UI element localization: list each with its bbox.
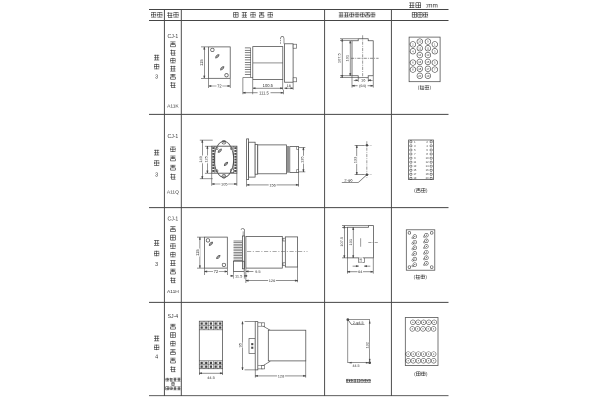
svg-text:A11Q: A11Q bbox=[167, 189, 179, 195]
svg-text:12: 12 bbox=[418, 46, 421, 50]
svg-text:16: 16 bbox=[418, 60, 421, 64]
svg-text:107.5: 107.5 bbox=[336, 53, 341, 63]
svg-text:CJ-1: CJ-1 bbox=[168, 134, 179, 140]
svg-text:2-φ4.5: 2-φ4.5 bbox=[353, 321, 364, 325]
svg-text:11: 11 bbox=[427, 46, 430, 50]
svg-text:2-φ6: 2-φ6 bbox=[344, 178, 352, 183]
svg-text:11.5: 11.5 bbox=[235, 274, 242, 279]
svg-text:19: 19 bbox=[426, 74, 429, 78]
svg-text:3: 3 bbox=[155, 74, 158, 80]
svg-text:105: 105 bbox=[221, 181, 228, 186]
svg-text:(64): (64) bbox=[359, 83, 367, 88]
svg-text:16: 16 bbox=[361, 78, 365, 83]
svg-text:133: 133 bbox=[352, 157, 357, 164]
svg-text:3: 3 bbox=[155, 172, 158, 178]
svg-text:132: 132 bbox=[364, 342, 369, 349]
svg-text::mm: :mm bbox=[425, 3, 437, 10]
svg-text:14: 14 bbox=[418, 53, 421, 57]
svg-text:156: 156 bbox=[269, 182, 276, 187]
svg-text:125: 125 bbox=[204, 156, 209, 163]
svg-text:115: 115 bbox=[195, 249, 200, 256]
svg-text:95: 95 bbox=[238, 343, 243, 347]
svg-text:13: 13 bbox=[426, 53, 429, 57]
svg-text:72: 72 bbox=[214, 269, 219, 274]
svg-text:100.5: 100.5 bbox=[263, 83, 274, 88]
svg-text:135: 135 bbox=[299, 156, 304, 163]
svg-text:10: 10 bbox=[418, 40, 421, 44]
svg-text:115: 115 bbox=[199, 59, 204, 66]
svg-text:CJ-1: CJ-1 bbox=[168, 216, 179, 222]
svg-text:17: 17 bbox=[426, 67, 429, 71]
svg-text:44.5: 44.5 bbox=[207, 375, 215, 380]
svg-text:111.5: 111.5 bbox=[259, 90, 269, 95]
svg-text:9.5: 9.5 bbox=[255, 269, 260, 274]
svg-text:15: 15 bbox=[426, 60, 429, 64]
svg-text:72: 72 bbox=[217, 84, 222, 89]
svg-text:4: 4 bbox=[155, 354, 158, 360]
svg-text:101: 101 bbox=[345, 55, 350, 62]
svg-text:101: 101 bbox=[348, 239, 353, 246]
svg-text:20: 20 bbox=[418, 74, 421, 78]
svg-text:SJ-4: SJ-4 bbox=[168, 314, 179, 320]
svg-text:16: 16 bbox=[359, 258, 363, 262]
svg-text:149: 149 bbox=[198, 156, 203, 163]
svg-text:44.5: 44.5 bbox=[353, 364, 360, 368]
svg-text:A11K: A11K bbox=[167, 104, 179, 110]
svg-text:107.5: 107.5 bbox=[339, 237, 344, 247]
svg-text:18: 18 bbox=[418, 67, 421, 71]
svg-text:A11H: A11H bbox=[167, 289, 179, 295]
svg-text:3: 3 bbox=[155, 262, 158, 268]
svg-text:128: 128 bbox=[278, 373, 285, 378]
svg-text:126: 126 bbox=[269, 278, 276, 283]
svg-text:16: 16 bbox=[287, 83, 291, 88]
svg-text:CJ-1: CJ-1 bbox=[168, 34, 179, 40]
